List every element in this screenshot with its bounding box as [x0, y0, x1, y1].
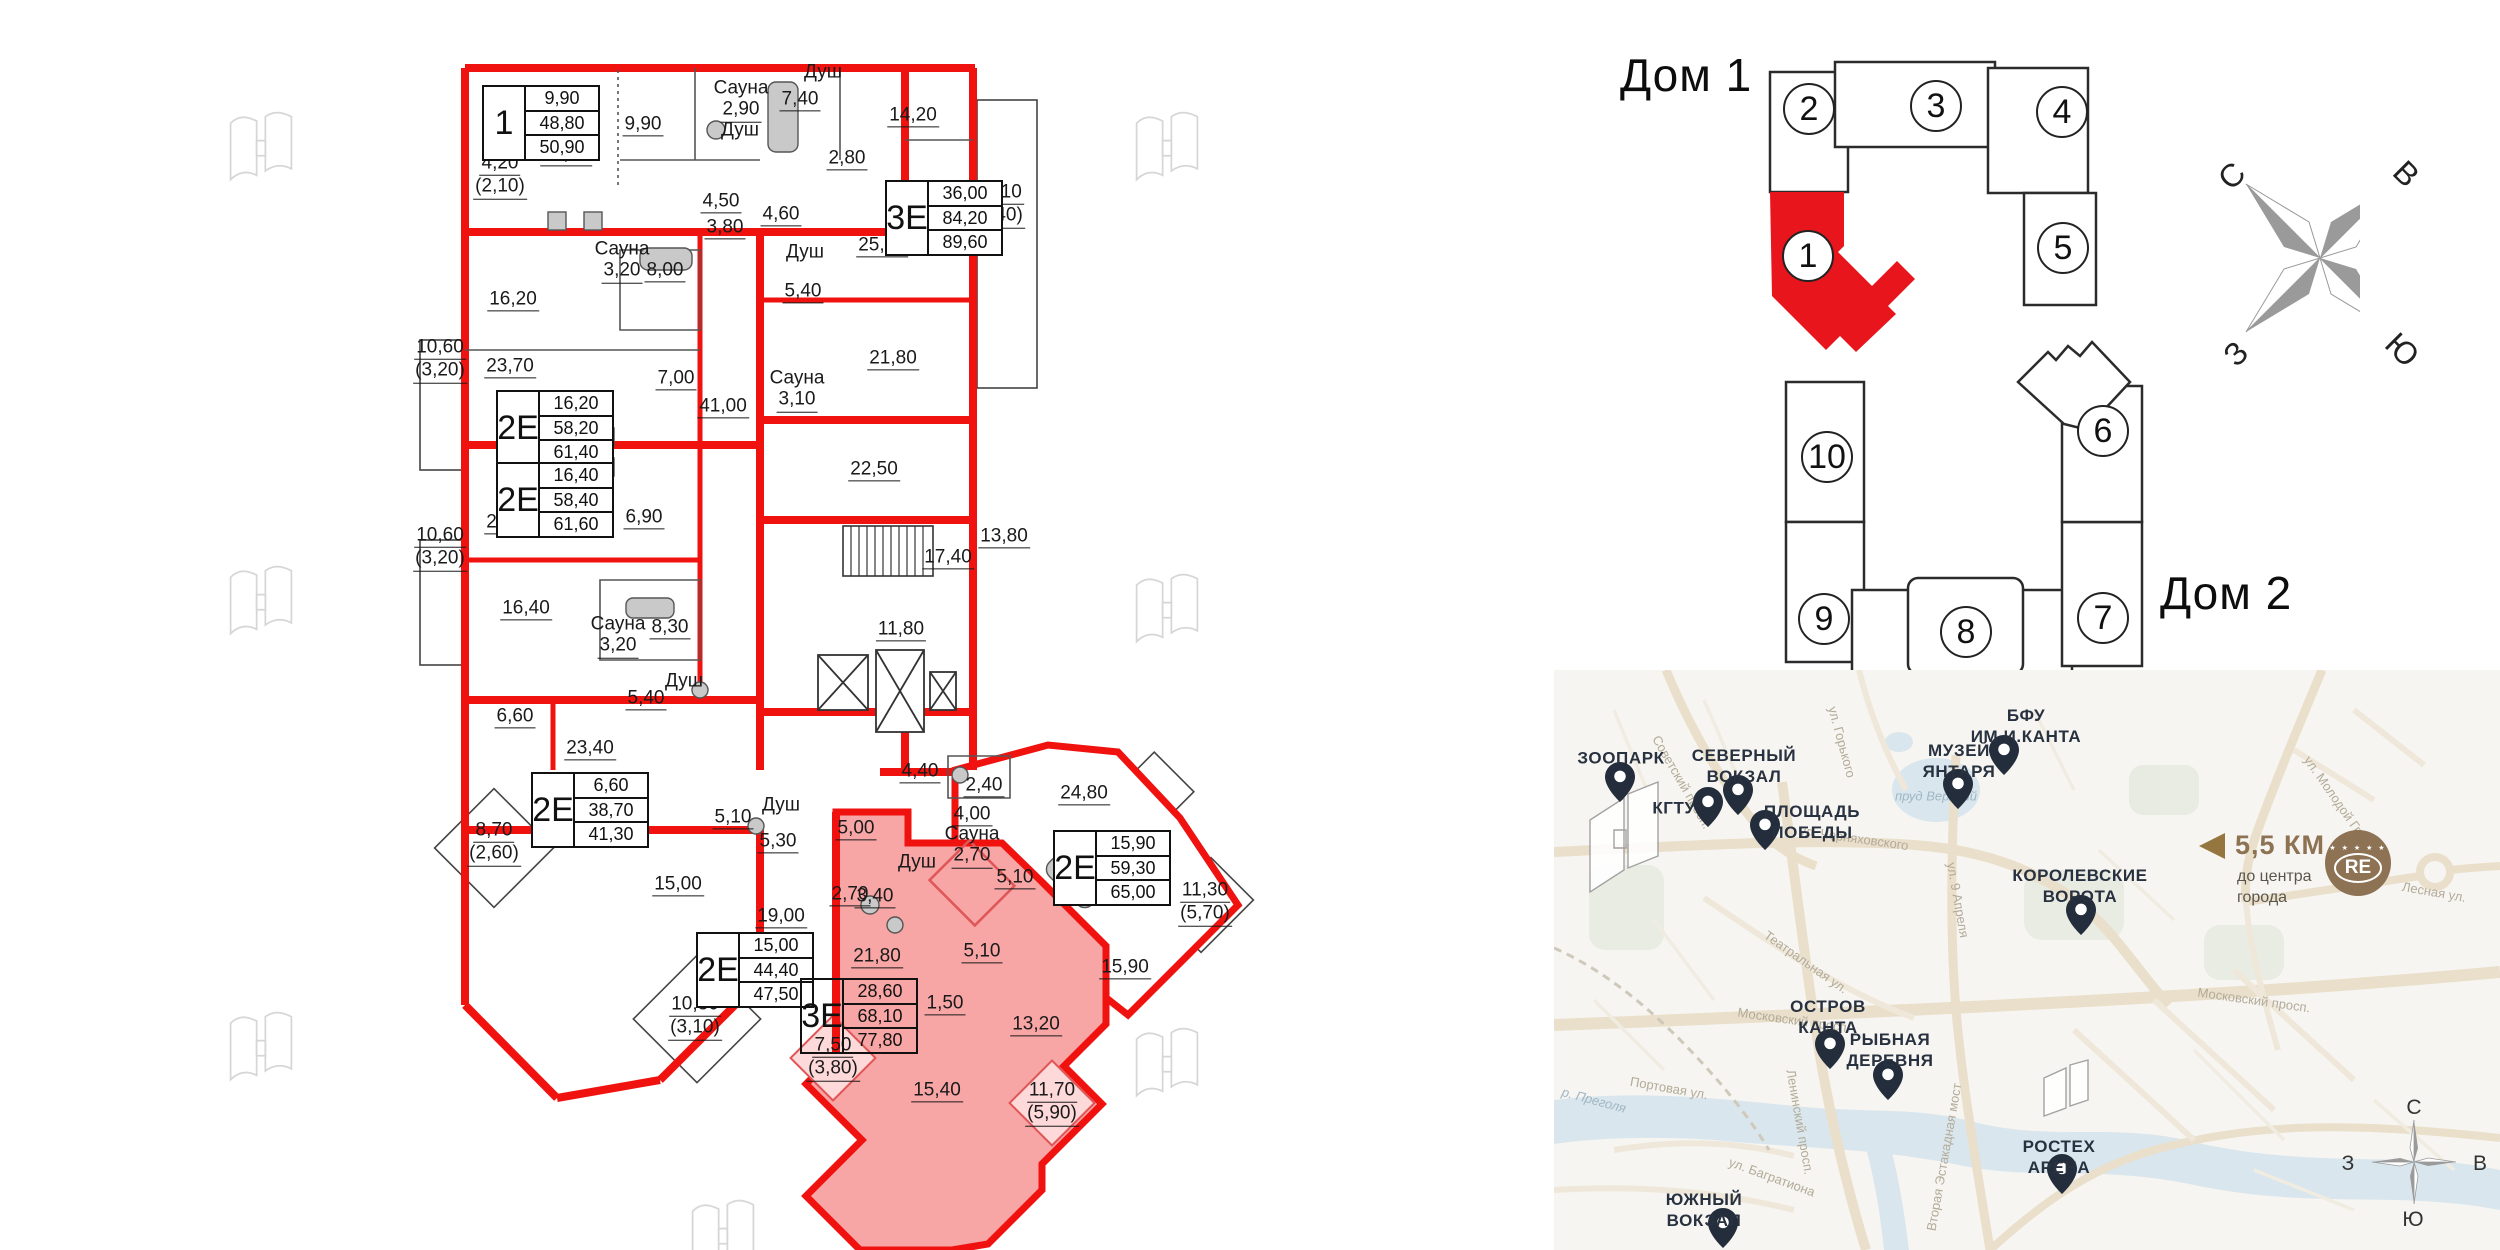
room-dimension-label: 1,50 [925, 992, 966, 1015]
map-poi-label: ПЛОЩАДЬ ПОБЕДЫ [1764, 801, 1860, 844]
building-section-number[interactable]: 5 [2037, 222, 2089, 274]
room-dimension-label: 15,90 [1099, 956, 1151, 979]
map-compass-direction-label: З [2342, 1152, 2355, 1176]
room-dimension-label: 6,60 [495, 705, 536, 728]
room-dimension-label: 8,70 (2,60) [467, 820, 521, 867]
unit-area-living: 6,60 [575, 774, 647, 799]
distance-km: 5,5 КМ [2235, 830, 2325, 861]
unit-area-living: 15,00 [740, 934, 812, 959]
building-section-number[interactable]: 9 [1798, 593, 1850, 645]
map-poi-label: РЫБНАЯ ДЕРЕВНЯ [1846, 1029, 1933, 1072]
building-section-number[interactable]: 7 [2077, 592, 2129, 644]
building-section-number[interactable]: 3 [1910, 80, 1962, 132]
compass-direction-label: З [2216, 334, 2256, 374]
unit-area-base: 38,70 [575, 799, 647, 824]
map-poi-label: БФУ ИМ.И.КАНТА [1971, 705, 2082, 748]
map-poi-label: СЕВЕРНЫЙ ВОКЗАЛ [1692, 745, 1797, 788]
map-poi-label: ЮЖНЫЙ ВОКЗАЛ [1666, 1189, 1743, 1232]
room-dimension-label: 15,40 [911, 1079, 963, 1102]
room-dimension-label: 5,10 [713, 806, 754, 829]
compass-direction-label: В [2385, 153, 2426, 194]
room-dimension-label: 2,40 [964, 774, 1005, 797]
room-dimension-label: Душ [762, 794, 800, 815]
room-dimension-label: 5,10 [962, 940, 1003, 963]
room-dimension-label: 24,80 [1058, 782, 1110, 805]
room-dimension-label: 5,30 [758, 830, 799, 853]
unit-area-total: 41,30 [575, 823, 647, 846]
building-section-number[interactable]: 6 [2077, 405, 2129, 457]
compass-direction-label: Ю [2377, 325, 2426, 374]
site-plan-overlay: 2 3 4 5 1 10 9 8 7 6 С В З Ю [0, 0, 2500, 700]
unit-info-table[interactable]: 2Е 6,60 38,70 41,30 [531, 772, 649, 848]
room-dimension-label: 11,30 (5,70) [1178, 880, 1232, 927]
map-compass-direction-label: Ю [2402, 1208, 2423, 1232]
unit-area-living: 28,60 [844, 980, 916, 1005]
map-compass-direction-label: В [2473, 1152, 2487, 1176]
room-dimension-label: 11,70 (5,90) [1025, 1080, 1079, 1127]
unit-info-table[interactable]: 2Е 15,00 44,40 47,50 [696, 932, 814, 1008]
map-poi-label: ЗООПАРК [1577, 747, 1664, 768]
unit-type: 3Е [802, 980, 844, 1052]
map-poi-label: КОРОЛЕВСКИЕ ВОРОТА [2012, 865, 2147, 908]
room-dimension-label: 5,10 [995, 866, 1036, 889]
room-dimension-label: 5,00 [836, 817, 877, 840]
unit-area-base: 59,30 [1097, 857, 1169, 882]
room-dimension-label: Сауна 2,70 [945, 824, 1000, 869]
map-compass-direction-label: С [2406, 1096, 2421, 1120]
unit-area-base: 68,10 [844, 1005, 916, 1030]
building-section-number[interactable]: 2 [1783, 83, 1835, 135]
unit-type: 2Е [698, 934, 740, 1006]
room-dimension-label: 13,20 [1010, 1013, 1062, 1036]
unit-info-table[interactable]: 2Е 15,90 59,30 65,00 [1053, 830, 1171, 906]
badge-label: RE [2334, 853, 2382, 883]
unit-area-total: 65,00 [1097, 881, 1169, 904]
unit-info-table[interactable]: 3Е 28,60 68,10 77,80 [800, 978, 918, 1054]
unit-area-living: 15,90 [1097, 832, 1169, 857]
building-section-number[interactable]: 1 [1782, 230, 1834, 282]
badge-stars-icon: ★ ★ ★ ★ ★ [2329, 844, 2386, 852]
arrow-left-icon [2199, 833, 2225, 859]
room-dimension-label: 4,40 [900, 760, 941, 783]
building-section-number[interactable]: 4 [2036, 86, 2088, 138]
room-dimension-label: 15,00 [652, 873, 704, 896]
unit-area-total: 77,80 [844, 1029, 916, 1052]
city-map[interactable]: Советский просп.ул. Горькогоул. Черняхов… [1554, 670, 2500, 1250]
room-dimension-label: 23,40 [564, 737, 616, 760]
room-dimension-label: 19,00 [755, 905, 807, 928]
map-pin-icon[interactable] [1693, 787, 1723, 827]
room-dimension-label: 3,40 [855, 885, 896, 908]
brand-badge-re: ★ ★ ★ ★ ★ RE [2325, 830, 2391, 896]
room-dimension-label: 21,80 [851, 945, 903, 968]
room-dimension-label: 4,00 [952, 803, 993, 826]
compass-direction-label: С [2211, 155, 2254, 198]
unit-type: 2Е [1055, 832, 1097, 904]
building-section-number[interactable]: 10 [1801, 431, 1853, 483]
room-dimension-label: Душ [898, 851, 936, 872]
map-poi-label: КГТУ [1652, 797, 1695, 818]
building-section-number[interactable]: 8 [1940, 606, 1992, 658]
map-poi-label: РОСТЕХ АРЕНА [2023, 1136, 2096, 1179]
unit-type: 2Е [533, 774, 575, 846]
